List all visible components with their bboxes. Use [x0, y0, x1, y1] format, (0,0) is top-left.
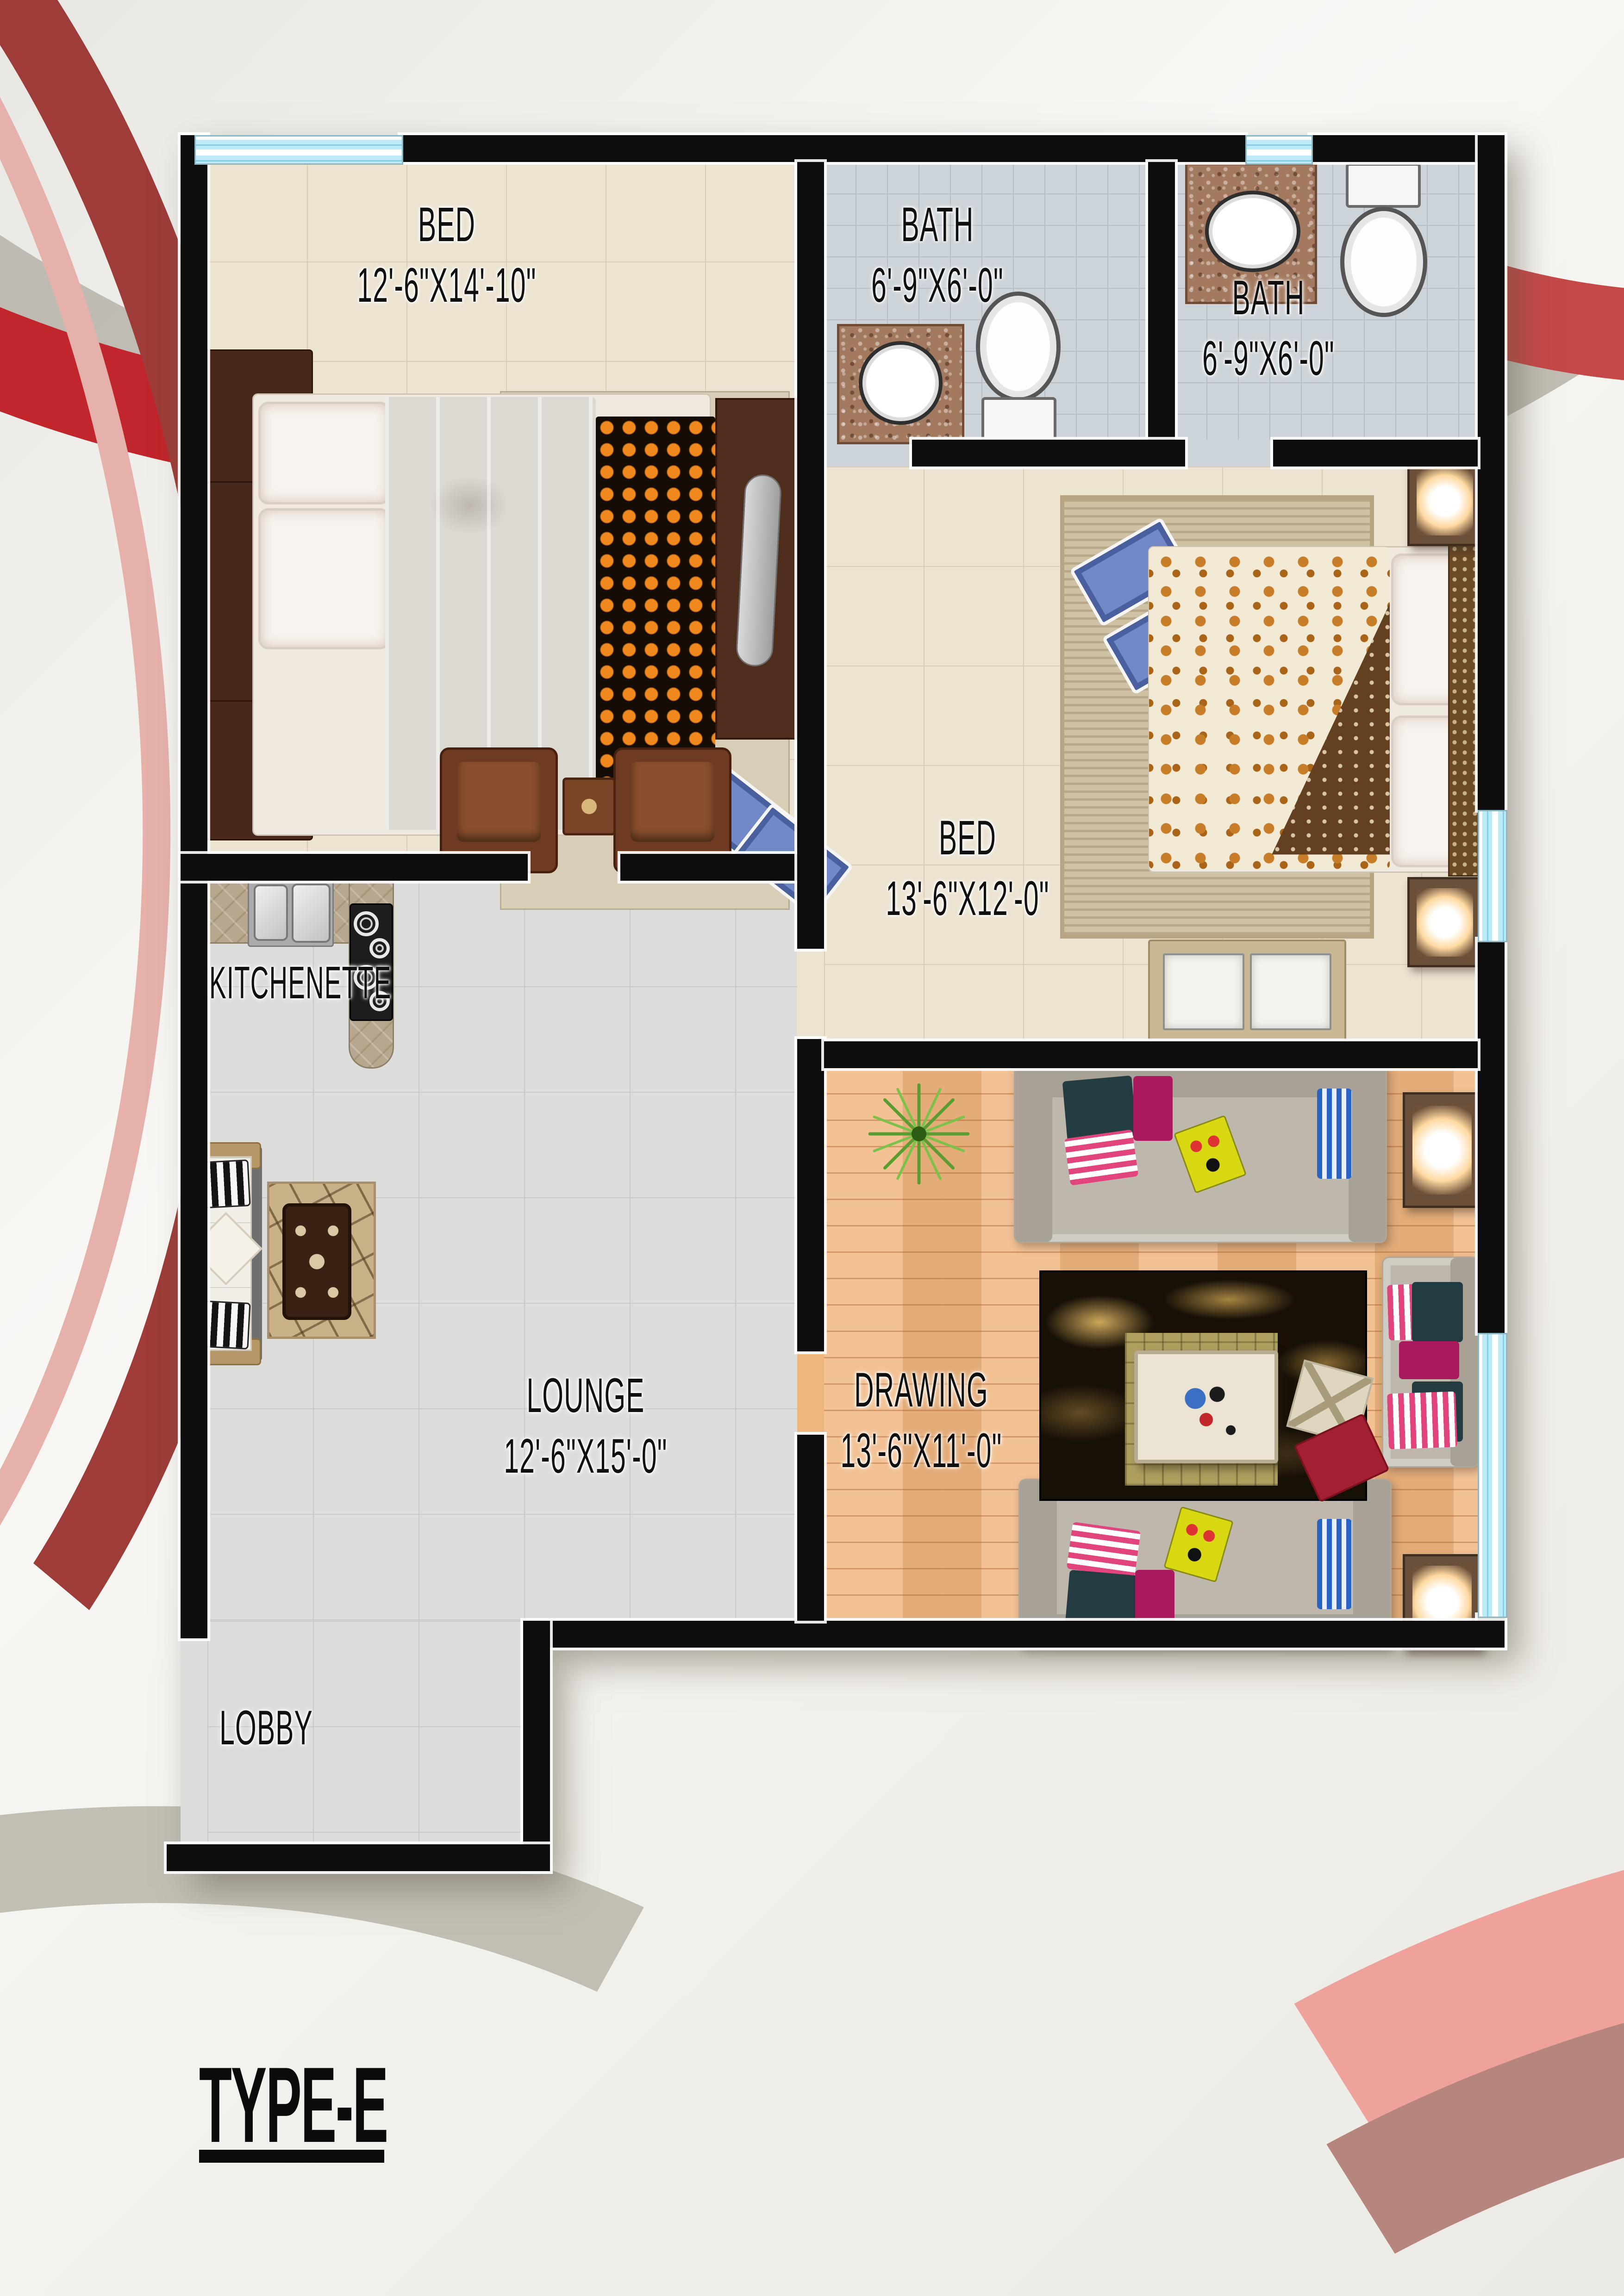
- drawing-sofa-bottom-cushion-pink: [1067, 1522, 1141, 1578]
- wall-lobby-bottom: [167, 1844, 550, 1871]
- bath2-dims: 6'-9"X6'-0": [1191, 328, 1346, 389]
- label-bath-2: BATH 6'-9"X6'-0": [1191, 268, 1346, 389]
- drawing-sofa-right-cushion-magenta: [1399, 1341, 1459, 1379]
- wall-right-middle: [1478, 940, 1505, 1333]
- bedroom1-wardrobe: [715, 398, 801, 740]
- bedroom2-name: BED: [864, 808, 1071, 868]
- wall-lobby-right: [523, 1621, 550, 1871]
- door-opening-bath-2: [1185, 440, 1273, 467]
- window-bedroom-1: [194, 135, 403, 165]
- bedroom2-nightstand-lamp-bottom-glow: [1417, 888, 1473, 957]
- drawing-lamp-table-top: [1403, 1092, 1481, 1208]
- wall-bottom-main: [523, 1621, 1505, 1648]
- wall-bedroom1-bottom-right: [620, 854, 824, 881]
- hob-burner-1: [354, 911, 379, 936]
- wall-top-right: [1310, 135, 1505, 162]
- wall-middle-vertical-mid: [797, 1039, 824, 1351]
- label-drawing: DRAWING 13'-6"X11'-0": [818, 1360, 1025, 1481]
- drawing-lamp-table-top-glow: [1412, 1106, 1472, 1195]
- window-drawing-room: [1478, 1333, 1507, 1618]
- bedroom1-armchair-2-seat: [631, 762, 714, 842]
- plan-type-title-underline: [199, 2150, 384, 2163]
- window-bedroom-2: [1478, 810, 1507, 942]
- drawing-sofa-top-cushion-blue: [1317, 1089, 1352, 1179]
- door-opening-entrance: [181, 1638, 207, 1844]
- bath1-name: BATH: [860, 194, 1015, 255]
- bedroom1-wardrobe-handle: [735, 473, 782, 667]
- drawing-sofa-right-cushion-pink-bottom: [1387, 1391, 1457, 1449]
- label-bedroom-2: BED 13'-6"X12'-0": [864, 808, 1071, 929]
- drawing-sofa-top-armrest-right: [1349, 1065, 1386, 1242]
- drawing-sofa-right-cushion-teal-top: [1412, 1282, 1463, 1342]
- label-bedroom-1: BED 12'-6"X14'-10": [343, 194, 550, 316]
- bedroom2-nightstand-lamp-bottom: [1407, 877, 1482, 967]
- label-lounge: LOUNGE 12'-6"X15'-0": [482, 1365, 689, 1487]
- bath2-sink-basin: [1205, 191, 1300, 272]
- bedroom1-side-table: [562, 778, 616, 835]
- lounge-name: LOUNGE: [482, 1365, 689, 1426]
- wall-top-middle: [400, 135, 1245, 162]
- kitchenette-sink: [248, 878, 334, 947]
- bath2-toilet: [1336, 163, 1428, 316]
- bedroom2-dresser-bench: [1148, 940, 1346, 1044]
- wall-bedroom1-bottom-left: [181, 854, 528, 881]
- bath1-sink-basin: [859, 341, 943, 425]
- bedroom1-armchair-1-seat: [457, 762, 541, 842]
- bath2-toilet-bowl: [1340, 207, 1427, 317]
- label-lobby: LOBBY: [208, 1698, 325, 1758]
- bath1-dims: 6'-9"X6'-0": [860, 255, 1015, 316]
- bath1-toilet-tank: [981, 397, 1056, 442]
- bedroom2-dresser-drawer-1: [1163, 953, 1244, 1030]
- bedroom1-headboard: [201, 481, 260, 702]
- drawing-sofa-bottom-cushion-blue: [1317, 1519, 1352, 1609]
- drawing-dims: 13'-6"X11'-0": [818, 1420, 1025, 1481]
- bath2-toilet-tank: [1346, 163, 1421, 208]
- drawing-sofa-top-cushion-magenta: [1133, 1076, 1173, 1141]
- drawing-sofa-top-armrest-left: [1015, 1065, 1052, 1242]
- bedroom1-name: BED: [343, 194, 550, 255]
- plant-icon: [866, 1081, 972, 1187]
- lounge-coffee-table: [282, 1203, 351, 1320]
- bedroom2-nightstand-lamp-top: [1407, 456, 1482, 546]
- bedroom2-dims: 13'-6"X12'-0": [864, 868, 1071, 929]
- wall-left: [181, 135, 207, 1638]
- wall-bedroom2-drawing: [824, 1041, 1478, 1068]
- wall-right-upper: [1478, 135, 1505, 810]
- bedroom2-nightstand-lamp-top-glow: [1417, 467, 1473, 535]
- bedroom1-dims: 12'-6"X14'-10": [343, 255, 550, 316]
- door-opening-bedroom-2: [797, 949, 824, 1039]
- kitchenette-sink-basin-right: [292, 884, 331, 943]
- bedroom2-dresser-drawer-2: [1250, 953, 1331, 1030]
- wall-baths-bottom-right: [1273, 440, 1478, 467]
- wall-middle-vertical-upper: [797, 162, 824, 949]
- kitchenette-sink-basin-left: [254, 884, 288, 941]
- wall-baths-divider: [1148, 162, 1175, 440]
- lounge-dims: 12'-6"X15'-0": [482, 1426, 689, 1487]
- label-bath-1: BATH 6'-9"X6'-0": [860, 194, 1015, 316]
- label-kitchenette: KITCHENETTE: [209, 954, 391, 1011]
- drawing-sofa-top-cushion-pink: [1064, 1129, 1139, 1186]
- floor-plan-page: BED 12'-6"X14'-10" BATH 6'-9"X6'-0" BATH…: [0, 0, 1624, 2296]
- drawing-coffee-table: [1134, 1350, 1278, 1463]
- bedroom2-headboard: [1448, 542, 1480, 877]
- bedroom1-pillow-1: [258, 402, 390, 504]
- bath2-name: BATH: [1191, 268, 1346, 328]
- wall-baths-bottom-left: [912, 440, 1185, 467]
- plan-type-title: TYPE-E: [199, 2043, 387, 2167]
- window-bath-2: [1245, 135, 1313, 165]
- drawing-name: DRAWING: [818, 1360, 1025, 1420]
- bath1-vanity-counter: [837, 324, 964, 444]
- bedroom1-pillow-2: [258, 508, 390, 649]
